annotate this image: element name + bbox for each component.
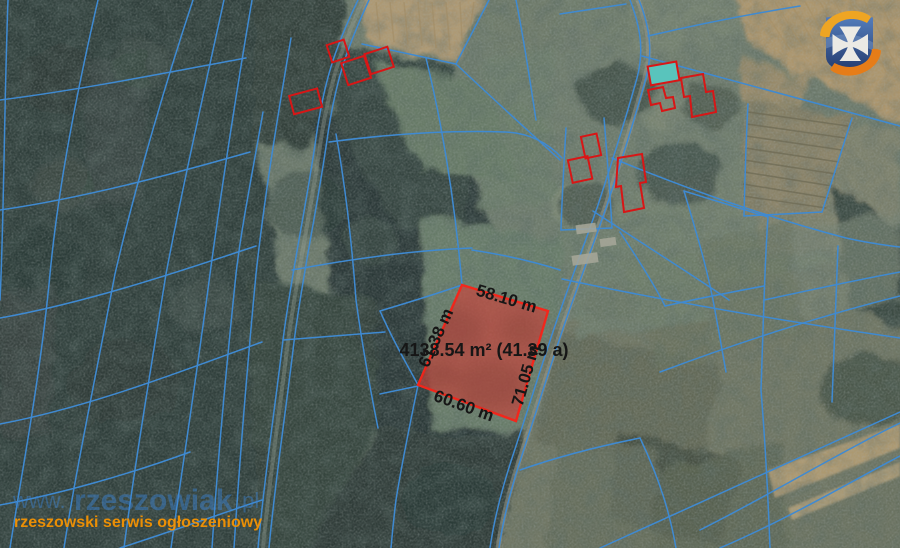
svg-text:www.: www. <box>12 488 66 513</box>
svg-text:rzeszowski serwis ogłoszeniowy: rzeszowski serwis ogłoszeniowy <box>14 514 262 531</box>
svg-text:rzeszowiak: rzeszowiak <box>74 484 233 517</box>
svg-text:.pl: .pl <box>236 488 259 513</box>
svg-text:4138.54 m² (41.39 a): 4138.54 m² (41.39 a) <box>399 340 568 360</box>
